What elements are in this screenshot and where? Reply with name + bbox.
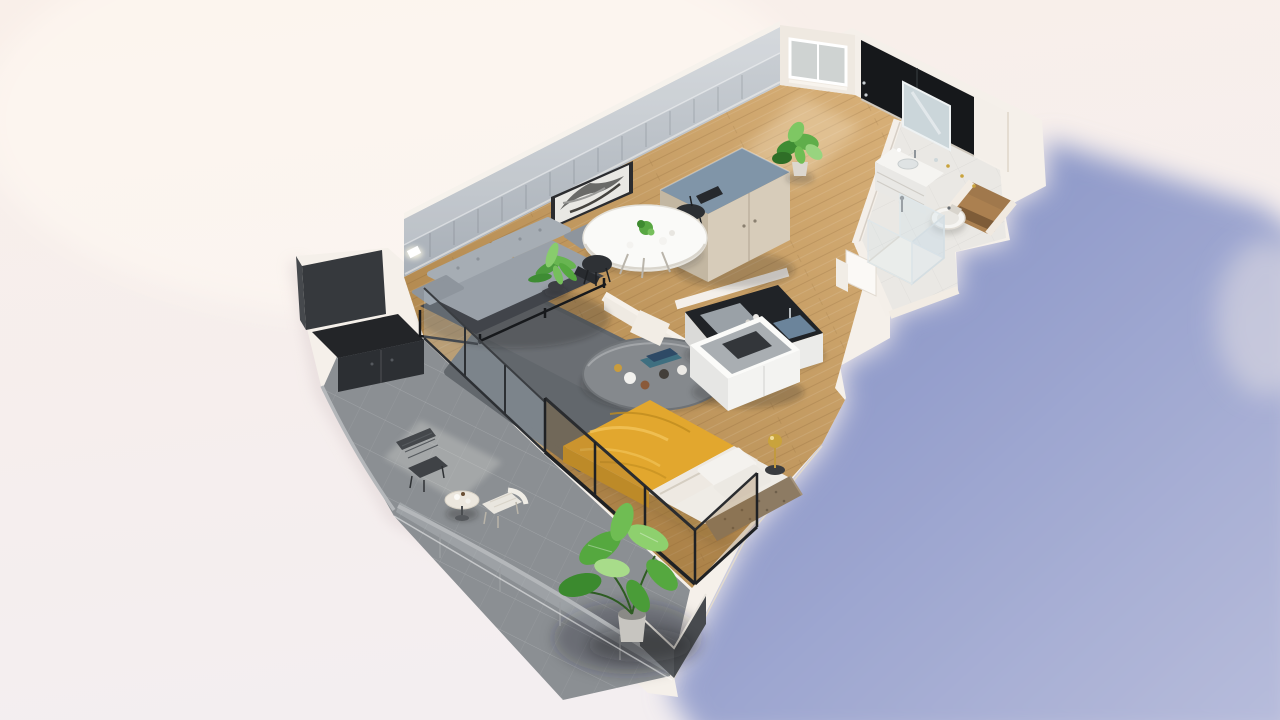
balcony-cup1 [454,494,460,500]
wardrobe-handle1 [742,224,745,227]
window-wall [780,25,855,95]
vanity-sink [898,159,918,169]
lamp-shade [768,434,782,448]
shower-head-dot [900,196,904,200]
balcony-table [445,491,479,521]
lamp-highlight [770,436,774,440]
balcony-cup2 [465,498,470,503]
hall-plant-pot [792,162,808,176]
floor-plan-svg: 3D isometric cutaway floor plan render o… [0,0,1280,720]
floor-plan-render: 3D isometric cutaway floor plan render o… [0,0,1280,720]
door-handle-dot2 [864,93,867,96]
cabinet-handle2 [391,359,394,362]
wardrobe-handle2 [753,219,756,222]
bathroom-door-panel2 [836,258,848,292]
balcony-coffee [461,492,465,496]
door-handle-dot1 [862,81,865,84]
cabinet-handle1 [371,363,374,366]
